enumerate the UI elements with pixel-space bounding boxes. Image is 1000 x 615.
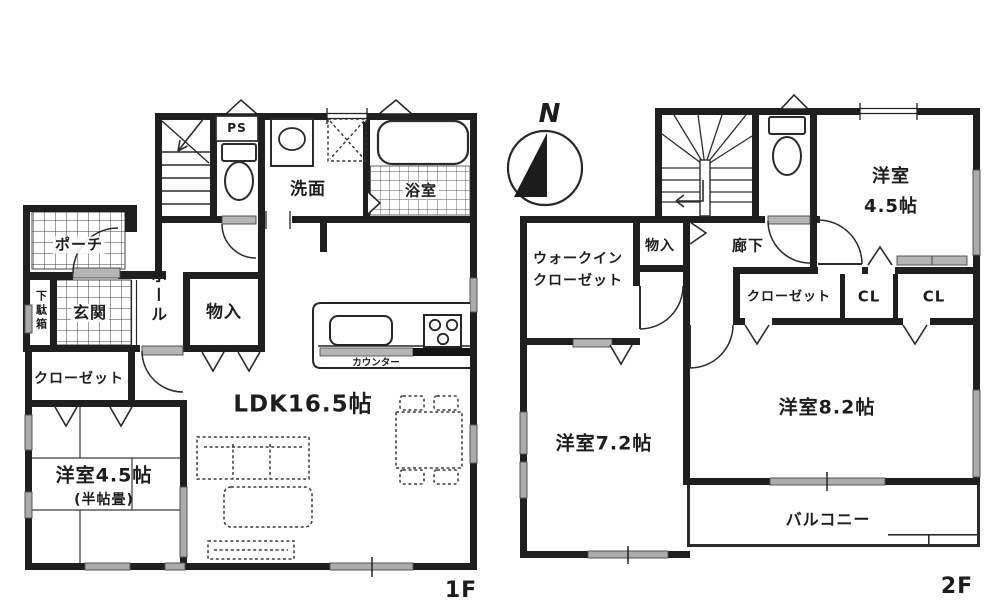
room-label-porch: ポーチ — [53, 237, 105, 254]
floor1-furniture — [197, 396, 462, 559]
room-label-cl2: CL — [923, 290, 946, 305]
floor1-stairs-icon — [162, 118, 210, 204]
compass-north-label: N — [539, 101, 562, 127]
room-label-wic-line2: クローゼット — [533, 274, 623, 288]
floor2-stairs-icon — [662, 115, 752, 216]
floor1-washer-icon — [328, 119, 366, 161]
room-label-ps: PS — [227, 122, 246, 134]
floor1-step-lines — [132, 280, 137, 345]
room-label-yoshitsu45-1f: 洋室4.5帖 — [56, 467, 153, 486]
room-label-yokushitsu: 浴室 — [403, 183, 439, 200]
floor2-label: 2F — [941, 576, 973, 598]
room-label-closet-2f: クローゼット — [747, 291, 831, 304]
room-label-yoshitsu45-sub: (半帖畳) — [74, 493, 134, 507]
floor2-vent-triangle — [781, 95, 808, 109]
room-label-monoire-2f: 物入 — [645, 239, 675, 253]
north-compass-icon — [508, 131, 582, 205]
room-label-closet-1f: クローゼット — [34, 372, 124, 386]
room-label-senmen: 洗面 — [290, 182, 326, 199]
room-label-cl1: CL — [858, 290, 881, 305]
room-label-yoshitsu72: 洋室7.2帖 — [556, 435, 653, 454]
room-label-monoire-1f: 物入 — [206, 305, 242, 322]
room-label-wic-line1: ウォークイン — [533, 252, 623, 266]
room-label-ldk: LDK16.5帖 — [233, 394, 372, 417]
floorplan-page: N ポーチ 玄関 下駄箱 ホール 物入 洗面 浴室 PS クローゼット 洋室4.… — [0, 0, 1000, 615]
room-label-rouka: 廊下 — [732, 239, 764, 254]
floor2-toilet-icon — [769, 117, 805, 175]
floor1-washstand-icon — [271, 119, 313, 166]
room-label-yoshitsu82: 洋室8.2帖 — [779, 399, 876, 418]
label-counter: カウンター — [352, 358, 400, 368]
floor1-label: 1F — [445, 580, 477, 602]
room-label-hall: ホール — [149, 268, 165, 325]
floor1-vent-triangles — [226, 100, 412, 114]
room-label-yoshitsu45-2f-line1: 洋室 — [872, 168, 910, 186]
room-label-balcony: バルコニー — [786, 512, 871, 528]
room-label-yoshitsu45-2f-line2: 4.5帖 — [864, 198, 918, 216]
room-label-getabako: 下駄箱 — [36, 290, 47, 332]
room-label-genkan: 玄関 — [71, 304, 109, 322]
